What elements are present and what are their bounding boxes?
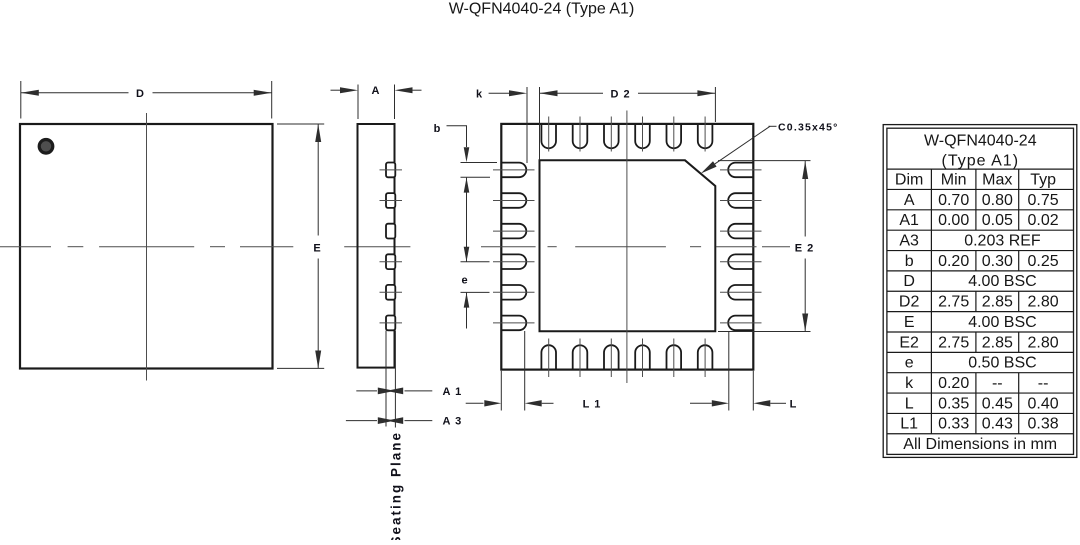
- svg-text:2.75: 2.75: [938, 294, 969, 311]
- svg-text:E: E: [904, 314, 915, 331]
- svg-text:0.20: 0.20: [938, 253, 969, 270]
- svg-text:0.00: 0.00: [938, 212, 969, 229]
- svg-text:E2: E2: [899, 334, 919, 351]
- svg-text:0.70: 0.70: [938, 192, 969, 209]
- svg-text:Min: Min: [941, 171, 967, 188]
- svg-text:2.80: 2.80: [1028, 294, 1059, 311]
- svg-text:0.40: 0.40: [1028, 395, 1059, 412]
- svg-text:0.203 REF: 0.203 REF: [964, 232, 1041, 249]
- svg-text:2.75: 2.75: [938, 334, 969, 351]
- svg-text:(Type A1): (Type A1): [942, 153, 1019, 170]
- svg-text:0.45: 0.45: [982, 395, 1013, 412]
- svg-text:0.35: 0.35: [938, 395, 969, 412]
- svg-text:e: e: [461, 274, 468, 286]
- svg-text:L: L: [790, 398, 798, 410]
- svg-text:0.25: 0.25: [1028, 253, 1059, 270]
- svg-text:0.38: 0.38: [1028, 416, 1059, 433]
- svg-text:0.43: 0.43: [982, 416, 1013, 433]
- svg-text:E: E: [313, 242, 321, 254]
- svg-text:All Dimensions in mm: All Dimensions in mm: [903, 436, 1057, 453]
- svg-text:D 2: D 2: [610, 88, 630, 100]
- svg-text:b: b: [905, 253, 914, 270]
- svg-text:0.05: 0.05: [982, 212, 1013, 229]
- svg-text:A3: A3: [899, 232, 919, 249]
- svg-text:D: D: [136, 88, 145, 100]
- svg-text:D: D: [903, 273, 915, 290]
- svg-text:A 1: A 1: [443, 386, 463, 398]
- svg-text:L1: L1: [900, 416, 918, 433]
- svg-text:W-QFN4040-24 (Type A1): W-QFN4040-24 (Type A1): [449, 1, 635, 18]
- svg-text:C0.35x45°: C0.35x45°: [778, 121, 839, 133]
- svg-text:L: L: [905, 395, 914, 412]
- svg-text:k: k: [905, 375, 914, 392]
- svg-text:--: --: [1038, 375, 1049, 392]
- svg-text:2.85: 2.85: [982, 294, 1013, 311]
- svg-text:Seating Plane: Seating Plane: [389, 431, 404, 540]
- svg-text:W-QFN4040-24: W-QFN4040-24: [924, 133, 1037, 150]
- svg-text:D2: D2: [899, 294, 920, 311]
- svg-text:0.50 BSC: 0.50 BSC: [968, 355, 1036, 372]
- svg-text:Typ: Typ: [1030, 171, 1056, 188]
- svg-text:--: --: [992, 375, 1003, 392]
- svg-text:0.75: 0.75: [1028, 192, 1059, 209]
- svg-text:L 1: L 1: [583, 398, 602, 410]
- svg-text:E 2: E 2: [795, 243, 815, 255]
- svg-text:b: b: [434, 123, 442, 135]
- svg-text:e: e: [905, 355, 914, 372]
- svg-text:0.33: 0.33: [938, 416, 969, 433]
- svg-text:A: A: [904, 192, 915, 209]
- svg-text:2.85: 2.85: [982, 334, 1013, 351]
- svg-text:A1: A1: [899, 212, 919, 229]
- svg-text:Dim: Dim: [895, 171, 923, 188]
- svg-text:4.00 BSC: 4.00 BSC: [968, 273, 1036, 290]
- svg-text:Max: Max: [982, 171, 1012, 188]
- svg-text:0.80: 0.80: [982, 192, 1013, 209]
- svg-text:2.80: 2.80: [1028, 334, 1059, 351]
- svg-text:A 3: A 3: [443, 416, 463, 428]
- svg-text:0.20: 0.20: [938, 375, 969, 392]
- svg-text:0.02: 0.02: [1028, 212, 1059, 229]
- svg-text:k: k: [476, 88, 483, 100]
- svg-text:A: A: [372, 85, 381, 97]
- svg-text:4.00 BSC: 4.00 BSC: [968, 314, 1036, 331]
- svg-text:0.30: 0.30: [982, 253, 1013, 270]
